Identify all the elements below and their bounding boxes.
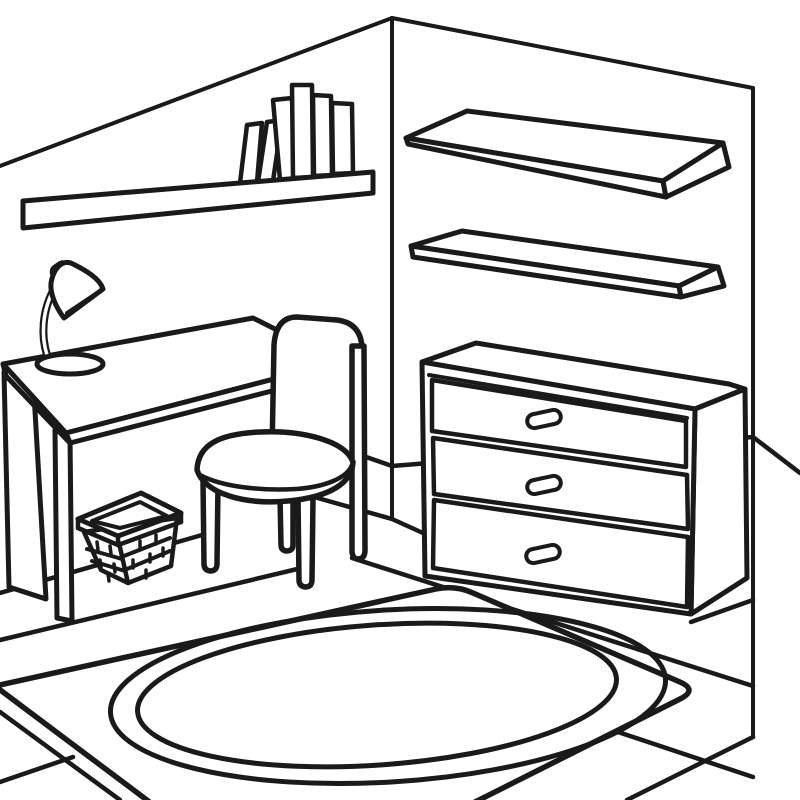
coloring-page: Black-and-white line drawing of a room c… <box>0 0 800 800</box>
lamp-base <box>37 354 103 374</box>
chair-front-right-leg <box>298 496 313 587</box>
wall-shelf-upper <box>406 111 729 197</box>
dresser <box>422 343 747 614</box>
desk-front-leg <box>55 430 72 621</box>
book <box>292 85 313 178</box>
weave-tick <box>100 560 101 568</box>
weave-tick <box>108 574 109 581</box>
shelf-board <box>23 172 373 228</box>
books <box>240 85 353 183</box>
wall-shelves-right <box>406 111 729 297</box>
weave-tick <box>110 546 111 554</box>
wall-shelf-left <box>23 85 373 228</box>
wall-shelf-lower <box>411 231 724 297</box>
book <box>332 103 353 174</box>
weave-tick <box>97 542 98 550</box>
chair-rear-left-leg <box>280 496 293 551</box>
dresser-right-side <box>691 389 747 614</box>
desk-lamp <box>37 260 103 374</box>
floor-back-edge-right <box>753 437 800 473</box>
right-wall-top-edge <box>392 18 753 88</box>
floorboard-line <box>0 757 73 782</box>
weave-tick <box>114 564 115 572</box>
book <box>313 95 332 176</box>
wastebasket <box>78 493 181 583</box>
chair-rear-right-post <box>352 346 365 559</box>
chair-front-left-leg <box>203 480 218 571</box>
rug <box>0 588 689 800</box>
room-drawing: Black-and-white line drawing of a room c… <box>0 0 800 800</box>
lamp-shade <box>51 262 103 318</box>
